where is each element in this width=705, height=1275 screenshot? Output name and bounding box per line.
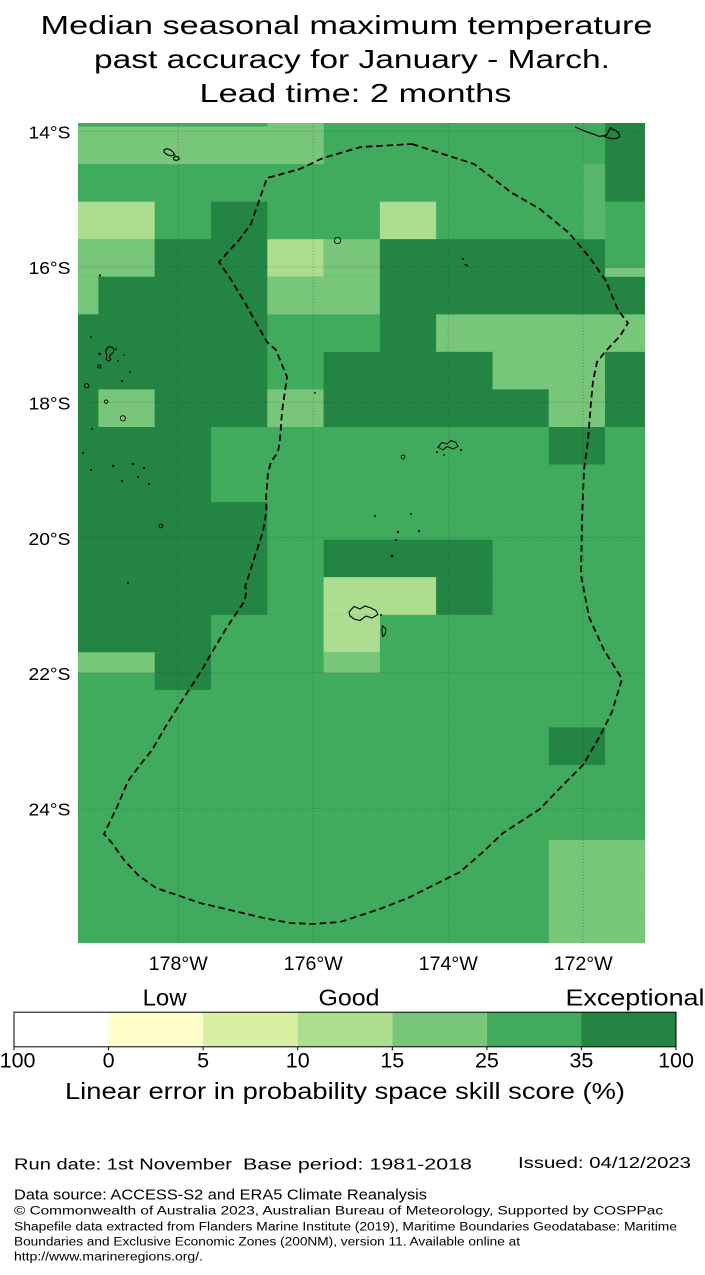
svg-text:18°S: 18°S — [29, 394, 71, 414]
svg-text:Low: Low — [143, 985, 187, 1011]
svg-text:15: 15 — [380, 1049, 404, 1073]
svg-text:past accuracy for January - Ma: past accuracy for January - March. — [94, 44, 610, 74]
svg-text:10: 10 — [286, 1049, 310, 1073]
svg-text:16°S: 16°S — [29, 258, 71, 278]
svg-text:Median seasonal maximum temper: Median seasonal maximum temperature — [41, 10, 653, 40]
svg-text:20°S: 20°S — [29, 529, 71, 549]
svg-text:Issued: 04/12/2023: Issued: 04/12/2023 — [518, 1155, 691, 1172]
svg-text:176°W: 176°W — [284, 953, 344, 975]
svg-text:Data source: ACCESS-S2 and ERA: Data source: ACCESS-S2 and ERA5 Climate … — [14, 1187, 427, 1204]
svg-text:25: 25 — [475, 1049, 499, 1073]
svg-text:Base period: 1981-2018: Base period: 1981-2018 — [243, 1157, 472, 1174]
svg-text:24°S: 24°S — [29, 800, 71, 820]
svg-text:Good: Good — [319, 985, 380, 1011]
svg-text:5: 5 — [197, 1049, 209, 1073]
svg-text:Exceptional: Exceptional — [566, 985, 705, 1011]
svg-text:0: 0 — [103, 1049, 115, 1073]
svg-text:© Commonwealth of Australia 20: © Commonwealth of Australia 2023, Austra… — [14, 1206, 663, 1218]
svg-text:35: 35 — [569, 1049, 593, 1073]
svg-text:172°W: 172°W — [554, 953, 614, 975]
svg-text:100: 100 — [658, 1049, 694, 1073]
svg-text:Run date: 1st November: Run date: 1st November — [14, 1157, 232, 1174]
svg-text:Lead time: 2 months: Lead time: 2 months — [200, 78, 512, 108]
svg-text:Linear error in probability sp: Linear error in probability space skill … — [65, 1078, 625, 1104]
svg-text:22°S: 22°S — [29, 664, 71, 684]
svg-text:Shapefile data extracted from: Shapefile data extracted from Flanders M… — [14, 1222, 677, 1234]
svg-text:-100: -100 — [0, 1049, 36, 1073]
svg-text:http://www.marineregions.org/.: http://www.marineregions.org/. — [14, 1252, 203, 1264]
svg-text:178°W: 178°W — [149, 953, 209, 975]
svg-text:Boundaries and Exclusive Econo: Boundaries and Exclusive Economic Zones … — [14, 1237, 521, 1249]
svg-text:174°W: 174°W — [419, 953, 479, 975]
svg-text:14°S: 14°S — [29, 123, 71, 143]
